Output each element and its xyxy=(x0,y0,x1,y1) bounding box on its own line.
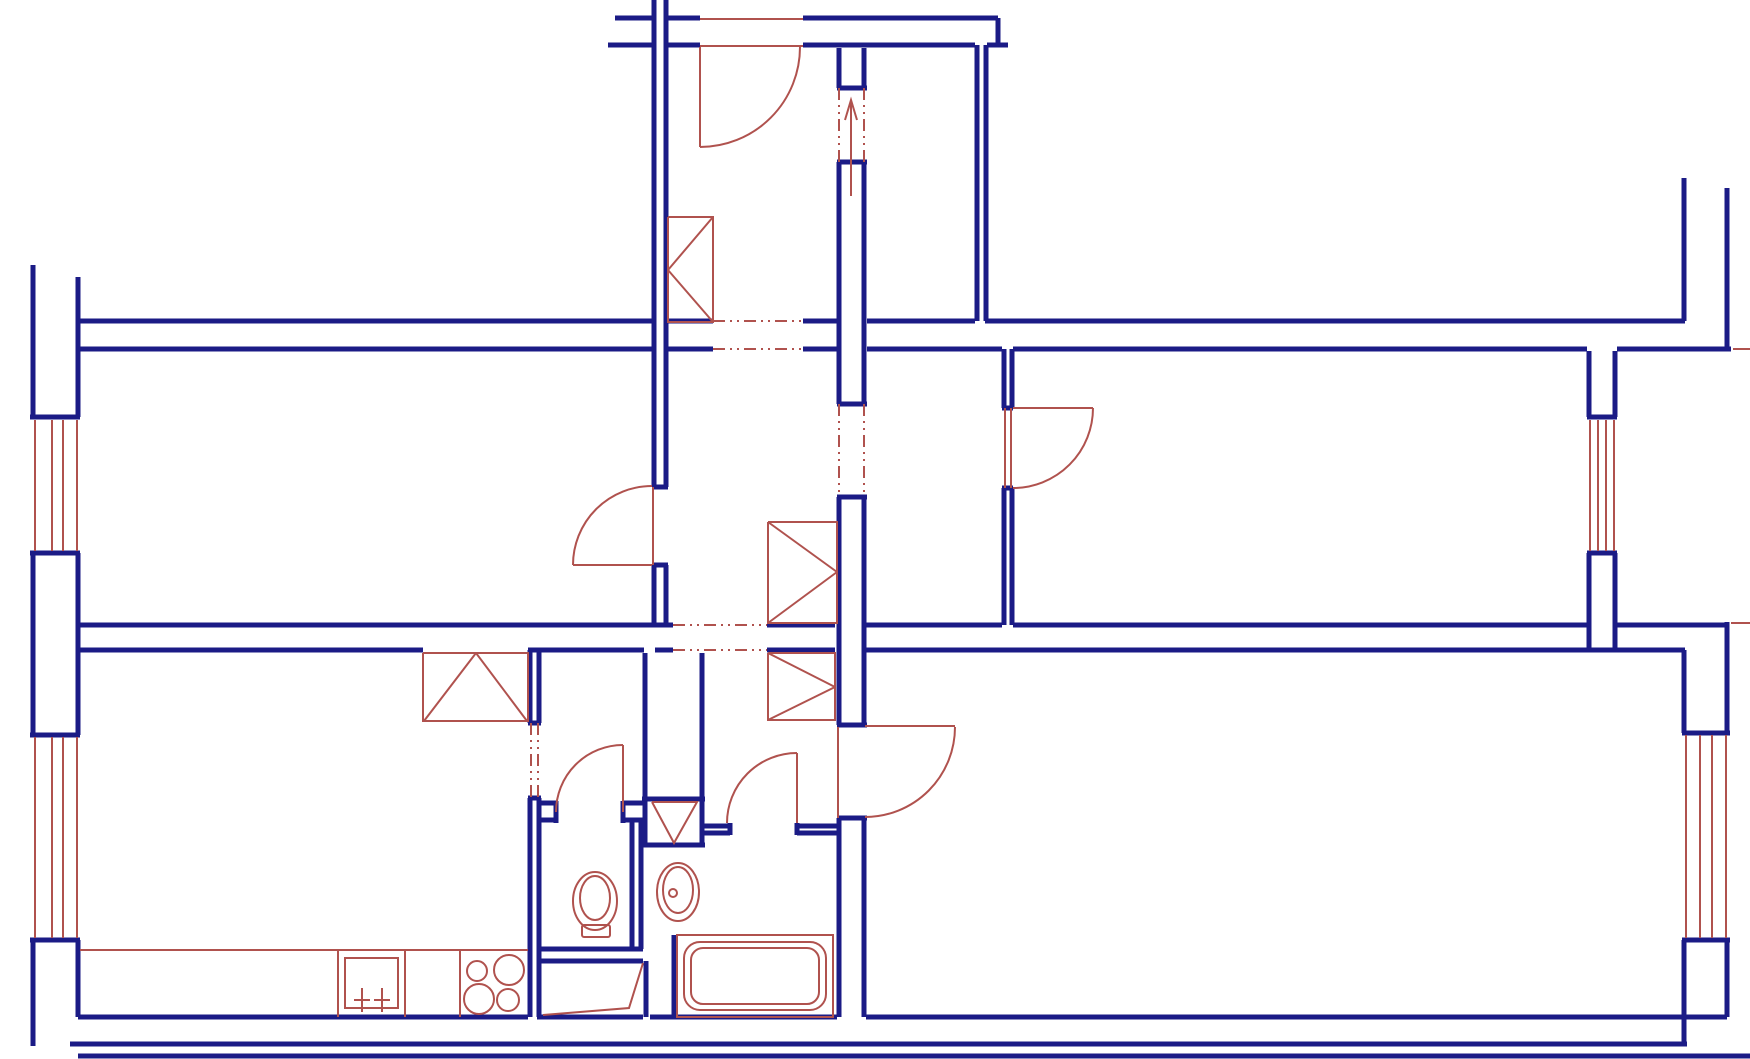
fixture-outline xyxy=(768,687,835,720)
floor-plan-page xyxy=(0,0,1750,1059)
fixture-rect xyxy=(684,942,826,1010)
fixture-circle xyxy=(497,989,519,1011)
fixture-circle xyxy=(669,889,677,897)
fixture-outline xyxy=(652,802,697,843)
fixture-outline xyxy=(668,217,713,322)
door-swing-arc xyxy=(1013,408,1093,488)
fixture-ellipse xyxy=(663,867,693,913)
door-swing-arc xyxy=(573,486,652,565)
fixture-outline xyxy=(668,217,713,270)
fixture-outline xyxy=(768,572,837,623)
fixture-rect xyxy=(345,958,398,1008)
fixture-outline xyxy=(423,653,528,721)
door-swing-arc xyxy=(865,727,955,817)
fixture-outline xyxy=(768,653,835,687)
floor-plan-drawing xyxy=(0,0,1750,1059)
door-swing-arc xyxy=(727,753,797,823)
fixture-circle xyxy=(464,984,494,1014)
fixture-outline xyxy=(476,653,527,721)
fixture-outline xyxy=(768,522,837,572)
doors-layer xyxy=(35,19,1750,1017)
fixture-outline xyxy=(768,653,835,720)
openings-layer xyxy=(531,88,864,798)
door-swing-arc xyxy=(700,47,800,147)
fixture-rect xyxy=(691,948,819,1004)
walls-layer xyxy=(30,0,1750,1056)
fixture-outline xyxy=(424,653,476,721)
fixtures-layer xyxy=(345,100,857,1017)
fixture-circle xyxy=(494,955,524,985)
fixture-ellipse xyxy=(580,876,610,920)
fixture-outline xyxy=(768,522,837,623)
fixture-outline xyxy=(668,270,713,322)
fixture-circle xyxy=(467,961,487,981)
door-swing-arc xyxy=(556,745,623,812)
fixture-outline xyxy=(543,963,643,1015)
